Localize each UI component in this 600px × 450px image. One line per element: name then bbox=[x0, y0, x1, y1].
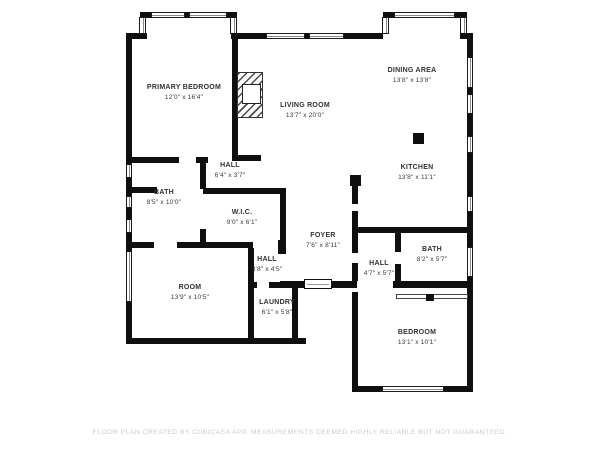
window bbox=[467, 136, 473, 153]
room-dims: 8'5" x 10'0" bbox=[147, 199, 181, 207]
room-dims: 13'8" x 11'1" bbox=[398, 174, 436, 182]
room-label-foyer: FOYER 7'6" x 8'11" bbox=[306, 232, 340, 250]
room-label-bath-right: BATH 8'2" x 5'7" bbox=[417, 246, 448, 264]
window bbox=[467, 94, 473, 114]
window bbox=[467, 57, 473, 88]
room-dims: 13'1" x 10'1" bbox=[398, 339, 436, 347]
fireplace-opening-icon bbox=[242, 84, 261, 104]
entry-door bbox=[304, 279, 332, 289]
room-name: W.I.C. bbox=[227, 209, 258, 218]
room-name: BEDROOM bbox=[398, 329, 436, 338]
room-dims: 7'6" x 8'11" bbox=[306, 242, 340, 250]
interior-wall bbox=[395, 264, 401, 282]
interior-wall bbox=[200, 157, 206, 189]
interior-wall bbox=[126, 242, 154, 248]
interior-wall bbox=[177, 242, 253, 248]
interior-wall bbox=[393, 281, 473, 288]
window bbox=[230, 17, 237, 34]
exterior-wall bbox=[231, 33, 383, 39]
window bbox=[151, 12, 185, 18]
room-label-living-room: LIVING ROOM 13'7" x 20'0" bbox=[280, 102, 330, 120]
window bbox=[126, 196, 132, 208]
interior-wall bbox=[352, 263, 358, 281]
column-post bbox=[350, 175, 361, 186]
exterior-wall bbox=[126, 338, 306, 344]
room-label-room: ROOM 13'9" x 10'5" bbox=[171, 284, 209, 302]
interior-wall bbox=[278, 240, 286, 254]
interior-wall bbox=[352, 227, 473, 233]
interior-wall bbox=[331, 281, 357, 288]
window bbox=[467, 196, 473, 212]
interior-wall bbox=[352, 233, 358, 253]
room-dims: 4'7" x 5'7" bbox=[364, 270, 395, 278]
exterior-wall bbox=[352, 292, 358, 392]
room-name: LIVING ROOM bbox=[280, 102, 330, 111]
room-dims: 3'8" x 4'5" bbox=[252, 266, 283, 274]
room-label-bedroom: BEDROOM 13'1" x 10'1" bbox=[398, 329, 436, 347]
room-name: HALL bbox=[364, 260, 395, 269]
interior-wall bbox=[126, 157, 179, 163]
room-name: BATH bbox=[147, 189, 181, 198]
room-dims: 13'7" x 20'0" bbox=[280, 112, 330, 120]
room-name: PRIMARY BEDROOM bbox=[147, 84, 221, 93]
room-dims: 6'1" x 5'8" bbox=[259, 309, 295, 317]
window bbox=[394, 12, 455, 18]
window bbox=[382, 386, 444, 392]
window bbox=[382, 17, 389, 34]
column-post bbox=[426, 294, 434, 301]
window bbox=[139, 17, 146, 34]
interior-wall bbox=[232, 155, 261, 161]
interior-wall bbox=[203, 188, 286, 194]
room-label-primary-bedroom: PRIMARY BEDROOM 12'0" x 16'4" bbox=[147, 84, 221, 102]
room-name: KITCHEN bbox=[398, 164, 436, 173]
interior-wall bbox=[248, 282, 257, 288]
window bbox=[309, 33, 344, 39]
room-dims: 8'2" x 5'7" bbox=[417, 256, 448, 264]
room-label-hall-upper: HALL 6'4" x 3'7" bbox=[215, 162, 246, 180]
room-label-laundry: LAUNDRY 6'1" x 5'8" bbox=[259, 299, 295, 317]
room-name: ROOM bbox=[171, 284, 209, 293]
interior-wall bbox=[352, 185, 358, 204]
window bbox=[266, 33, 305, 39]
room-dims: 13'8" x 13'8" bbox=[388, 77, 437, 85]
room-label-dining-area: DINING AREA 13'8" x 13'8" bbox=[388, 67, 437, 85]
room-label-kitchen: KITCHEN 13'8" x 11'1" bbox=[398, 164, 436, 182]
column-post bbox=[413, 133, 424, 144]
interior-wall bbox=[280, 281, 306, 288]
room-dims: 6'4" x 3'7" bbox=[215, 172, 246, 180]
window bbox=[460, 17, 467, 34]
room-label-hall-lower: HALL 3'8" x 4'5" bbox=[252, 256, 283, 274]
window bbox=[126, 251, 132, 302]
room-name: HALL bbox=[215, 162, 246, 171]
room-name: FOYER bbox=[306, 232, 340, 241]
room-name: DINING AREA bbox=[388, 67, 437, 76]
interior-wall bbox=[395, 233, 401, 252]
window bbox=[467, 247, 473, 277]
room-label-hall-right: HALL 4'7" x 5'7" bbox=[364, 260, 395, 278]
room-label-bath-left: BATH 8'5" x 10'0" bbox=[147, 189, 181, 207]
window bbox=[126, 164, 132, 178]
window bbox=[126, 219, 132, 233]
window bbox=[189, 12, 227, 18]
room-name: BATH bbox=[417, 246, 448, 255]
disclaimer-text: FLOOR PLAN CREATED BY CUBICASA APP. MEAS… bbox=[93, 429, 508, 436]
room-name: HALL bbox=[252, 256, 283, 265]
floor-plan: PRIMARY BEDROOM 12'0" x 16'4" LIVING ROO… bbox=[0, 0, 600, 450]
room-dims: 9'0" x 6'1" bbox=[227, 219, 258, 227]
room-dims: 13'9" x 10'5" bbox=[171, 294, 209, 302]
room-name: LAUNDRY bbox=[259, 299, 295, 308]
room-dims: 12'0" x 16'4" bbox=[147, 94, 221, 102]
room-label-wic: W.I.C. 9'0" x 6'1" bbox=[227, 209, 258, 227]
